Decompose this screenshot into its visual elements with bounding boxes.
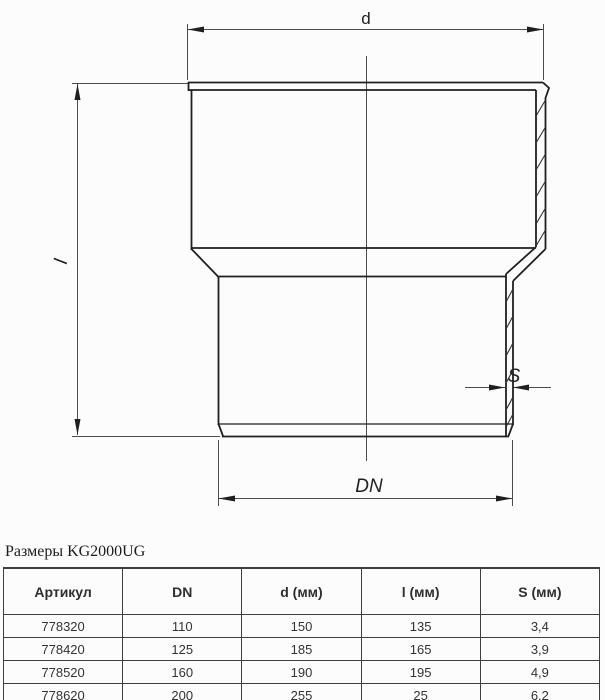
taper-left	[192, 249, 219, 277]
socket-right-wall-outer	[543, 83, 549, 250]
cell-dn: 110	[123, 615, 242, 638]
cell-l: 135	[361, 615, 480, 638]
cell-d: 190	[242, 661, 361, 684]
hatch-mark	[506, 289, 513, 302]
hatch-mark	[536, 181, 546, 197]
hatch-mark	[536, 154, 546, 170]
col-header-article: Артикул	[4, 568, 123, 615]
cell-s: 6,2	[480, 684, 599, 700]
reducer-section-view: d l S DN	[0, 0, 605, 540]
table-row: 778520 160 190 195 4,9	[4, 661, 600, 684]
technical-drawing: d l S DN	[0, 0, 605, 540]
cell-s: 3,4	[480, 615, 599, 638]
l-arrow-bottom	[75, 419, 81, 435]
col-header-s: S (мм)	[480, 568, 599, 615]
page: d l S DN Размеры KG2000UG Артикул DN d (…	[0, 0, 605, 700]
table-caption: Размеры KG2000UG	[5, 543, 145, 561]
reducer-outline	[188, 82, 549, 437]
hatch-mark	[506, 316, 513, 329]
dim-label-dn: DN	[355, 476, 383, 497]
cell-article: 778320	[4, 615, 123, 638]
s-arrow-left	[489, 385, 505, 391]
table-row: 778620 200 255 25 6,2	[4, 684, 600, 700]
hatch-mark	[536, 208, 546, 224]
cell-dn: 125	[123, 638, 242, 661]
cell-d: 150	[242, 615, 361, 638]
hatch-mark	[536, 100, 546, 116]
cell-dn: 200	[123, 684, 242, 700]
table-header-row: Артикул DN d (мм) l (мм) S (мм)	[4, 568, 600, 615]
cell-article: 778520	[4, 661, 123, 684]
dimensions-table: Артикул DN d (мм) l (мм) S (мм) 778320 1…	[3, 567, 600, 700]
dn-arrow-left	[219, 496, 236, 502]
spigot-chamfer-right	[509, 424, 514, 436]
cell-dn: 160	[123, 661, 242, 684]
cell-d: 255	[242, 684, 361, 700]
col-header-l: l (мм)	[361, 568, 480, 615]
dn-arrow-right	[496, 496, 513, 502]
table-row: 778320 110 150 135 3,4	[4, 615, 600, 638]
cell-s: 4,9	[480, 661, 599, 684]
taper-right-inner	[506, 247, 536, 274]
l-arrow-top	[75, 84, 81, 100]
cell-l: 195	[361, 661, 480, 684]
hatch-mark	[506, 397, 513, 410]
d-arrow-right	[527, 27, 544, 33]
table-row: 778420 125 185 165 3,9	[4, 638, 600, 661]
d-arrow-left	[188, 27, 205, 33]
hatch-mark	[506, 343, 513, 356]
cell-article: 778620	[4, 684, 123, 700]
cell-l: 25	[361, 684, 480, 700]
cell-d: 185	[242, 638, 361, 661]
dim-label-d: d	[361, 9, 370, 28]
cell-s: 3,9	[480, 638, 599, 661]
cell-l: 165	[361, 638, 480, 661]
cell-article: 778420	[4, 638, 123, 661]
hatch-mark	[536, 127, 546, 143]
dim-label-l: l	[51, 257, 73, 266]
dim-label-s: S	[508, 366, 521, 387]
dimension-arrows	[75, 27, 544, 502]
col-header-d: d (мм)	[242, 568, 361, 615]
dimension-lines	[72, 24, 551, 506]
hatch-mark	[536, 230, 546, 246]
col-header-dn: DN	[123, 568, 242, 615]
spigot-chamfer-left	[219, 424, 224, 436]
